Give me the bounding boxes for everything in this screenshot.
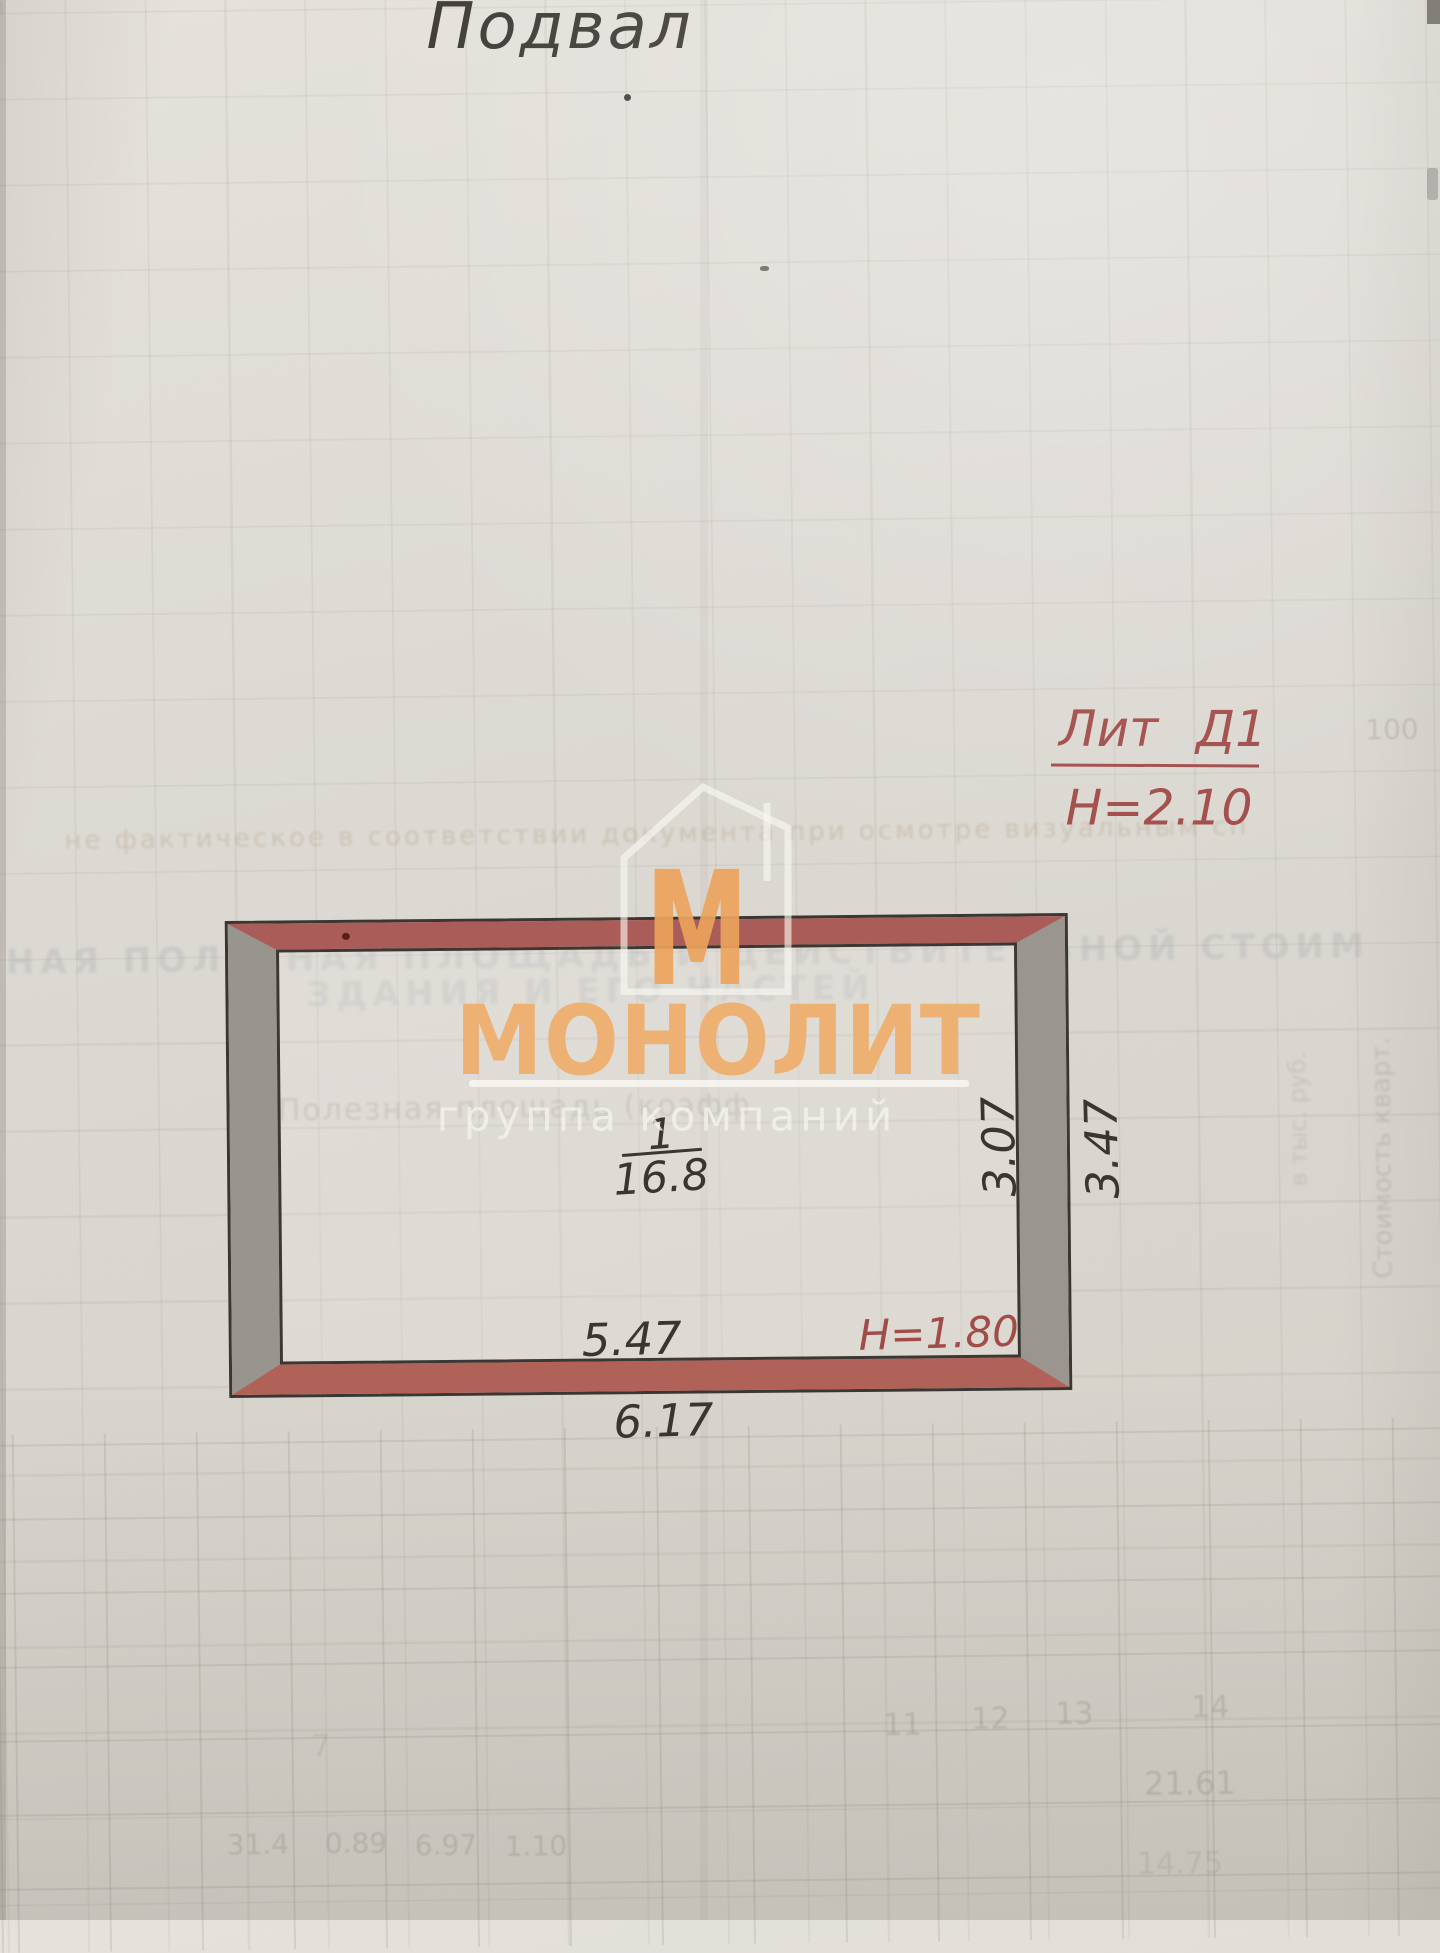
bleed-col-num: 14 [1191, 1690, 1230, 1725]
dim-ceiling-height: Н=1.80 [858, 1307, 1020, 1360]
litera-height: Н=2.10 [1065, 780, 1252, 837]
bleed-num-100: 100 [1365, 712, 1419, 746]
corner-artifact [1427, 0, 1440, 24]
bleed-cell-value: 1.10 [505, 1829, 568, 1863]
dim-bottom-inner: 5.47 [581, 1311, 683, 1367]
bleed-cell-value: 14.75 [1137, 1846, 1223, 1882]
ink-speck [760, 266, 769, 271]
bleed-cell-value: 7 [311, 1729, 331, 1764]
bleed-text-side2: в тыс. руб. [1283, 1051, 1313, 1186]
bleed-cell-value: 0.89 [325, 1826, 388, 1860]
page-title: Подвал [426, 0, 693, 64]
bleed-col-num: 13 [1055, 1696, 1094, 1731]
bleed-grid-bottom [0, 1417, 1440, 1953]
bleed-text-side1: Стоимость кварт. [1366, 1037, 1399, 1279]
bleed-cell-value: 6.97 [415, 1828, 478, 1862]
photo-left-edge [0, 0, 6, 1920]
litera-label: Лит Д1 [1059, 700, 1267, 758]
room-area: 16.8 [612, 1150, 711, 1206]
dim-right-inner: 3.07 [971, 1096, 1027, 1198]
bleed-cell-value: 31.4 [227, 1827, 290, 1861]
floor-plan: 1 16.8 5.47 Н=1.80 3.07 3.47 6.17 [225, 913, 1073, 1398]
bleed-col-num: 11 [883, 1708, 922, 1743]
edge-artifact [1427, 168, 1438, 200]
wall-mark-dot [342, 933, 350, 940]
bleed-cell-value: 21.61 [1144, 1764, 1236, 1803]
dim-right-outer: 3.47 [1074, 1098, 1130, 1200]
dim-bottom-outer: 6.17 [613, 1393, 715, 1449]
ink-speck [624, 94, 631, 101]
bleed-col-num: 12 [971, 1702, 1010, 1737]
